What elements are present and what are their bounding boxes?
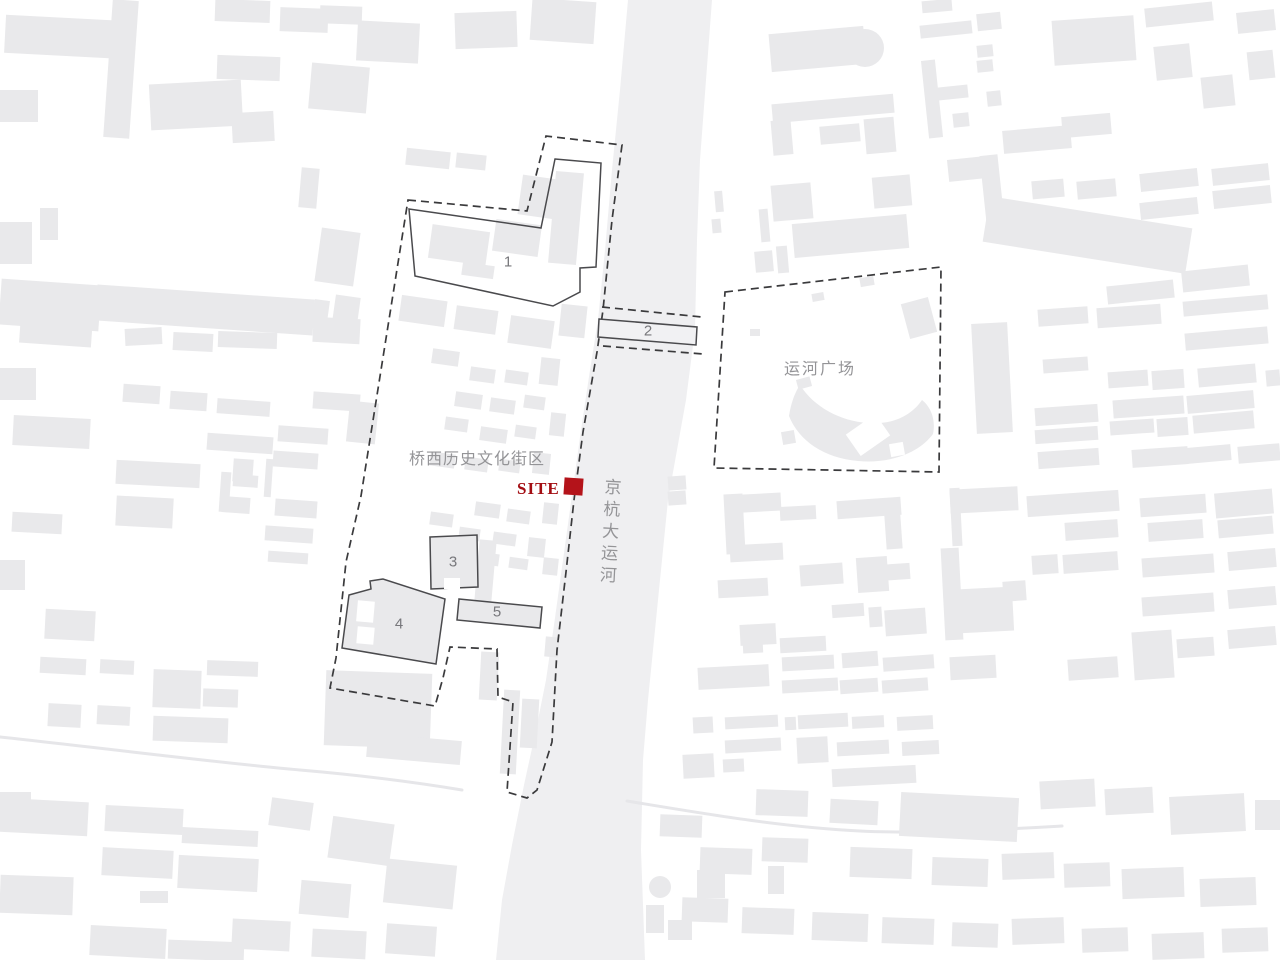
building-footprint <box>785 717 797 731</box>
building-footprint <box>859 276 874 287</box>
site-marker <box>563 477 583 495</box>
building-footprint <box>0 368 36 400</box>
building-footprint <box>233 474 259 488</box>
building-footprint <box>1186 390 1254 414</box>
building-footprint <box>1255 800 1280 830</box>
building-footprint <box>1141 593 1214 617</box>
building-footprint <box>1031 179 1064 200</box>
building-footprint <box>1002 852 1055 880</box>
building-footprint <box>405 148 451 170</box>
courtyard-patch <box>889 442 905 457</box>
building-footprint <box>308 63 370 114</box>
building-footprint <box>231 919 290 952</box>
building-footprint <box>776 246 789 274</box>
building-footprint <box>952 112 969 128</box>
building-footprint <box>217 55 281 81</box>
building-footprint <box>44 609 96 642</box>
building-footprint <box>842 651 879 668</box>
building-footprint <box>780 505 817 521</box>
building-footprint <box>725 738 782 754</box>
building-footprint <box>899 792 1019 842</box>
building-footprint <box>40 208 58 240</box>
building-footprint <box>115 496 173 529</box>
building-footprint <box>549 412 566 436</box>
building-footprint <box>1026 490 1119 517</box>
building-footprint <box>206 433 273 455</box>
building-footprint <box>956 587 1014 634</box>
building-footprint <box>668 920 692 940</box>
building-footprint <box>461 262 494 279</box>
building-footprint <box>530 0 597 44</box>
building-footprint <box>1169 793 1246 835</box>
building-footprint <box>1067 656 1118 680</box>
building-footprint <box>646 905 664 933</box>
building-footprint <box>311 929 366 960</box>
building-footprint <box>668 490 687 505</box>
building-footprint <box>231 111 275 143</box>
building-footprint <box>697 664 769 690</box>
building-footprint <box>298 167 319 208</box>
building-footprint <box>718 578 769 599</box>
building-footprint <box>356 20 420 63</box>
building-footprint <box>1227 626 1276 649</box>
building-footprint <box>1104 787 1153 815</box>
building-footprint <box>1106 280 1175 305</box>
building-footprint <box>882 677 929 693</box>
building-footprint <box>1212 185 1272 209</box>
building-footprint <box>882 917 935 945</box>
building-footprint <box>1227 586 1276 609</box>
building-footprint <box>723 758 745 772</box>
courtyard-patch <box>356 600 375 622</box>
building-footprint <box>771 119 794 156</box>
building-footprint <box>320 5 363 24</box>
building-footprint <box>1112 396 1184 419</box>
building-footprint <box>149 80 243 131</box>
building-footprint <box>811 292 824 302</box>
building-footprint <box>782 655 835 672</box>
building-footprint <box>474 501 501 518</box>
building-footprint <box>122 384 160 405</box>
building-footprint <box>40 657 87 675</box>
building-footprint <box>1222 927 1269 953</box>
building-footprint <box>840 678 879 695</box>
building-footprint <box>207 660 258 677</box>
building-footprint <box>265 525 314 543</box>
building-footprint <box>140 891 168 903</box>
building-footprint <box>742 907 795 935</box>
building-footprint <box>1183 294 1269 316</box>
building-footprint <box>739 623 776 646</box>
building-footprint <box>1151 369 1184 390</box>
building-footprint <box>1131 446 1188 468</box>
building-footprint <box>217 398 271 417</box>
building-footprint <box>12 415 90 449</box>
district-label: 桥西历史文化街区 <box>409 451 545 467</box>
building-footprint <box>1012 917 1065 945</box>
building-footprint <box>852 715 885 729</box>
building-footprint <box>759 209 771 243</box>
building-1-number: 1 <box>504 255 512 270</box>
building-footprint <box>504 369 529 385</box>
building-footprint <box>558 304 587 339</box>
building-footprint <box>693 716 714 733</box>
building-footprint <box>1107 370 1148 389</box>
building-footprint <box>872 174 913 208</box>
building-footprint <box>1184 326 1268 350</box>
building-footprint <box>314 228 360 287</box>
building-footprint <box>819 123 860 144</box>
building-footprint <box>812 912 869 942</box>
building-footprint <box>682 897 729 923</box>
building-footprint <box>832 765 917 787</box>
building-footprint <box>520 699 540 749</box>
building-footprint-round <box>846 29 884 67</box>
building-footprint <box>1144 1 1214 27</box>
building-footprint <box>47 703 81 728</box>
building-footprint <box>1211 163 1269 186</box>
building-footprint <box>1131 630 1174 681</box>
building-footprint <box>798 713 849 730</box>
building-footprint <box>0 875 74 916</box>
building-footprint <box>527 537 546 558</box>
building-footprint <box>274 499 317 519</box>
building-footprint <box>949 486 1018 514</box>
building-footprint <box>0 798 89 837</box>
building-footprint <box>1061 113 1112 138</box>
building-footprint <box>173 332 214 352</box>
building-footprint <box>1227 548 1276 571</box>
building-footprint <box>272 450 318 469</box>
building-footprint <box>1176 637 1214 659</box>
building-footprint <box>299 880 352 918</box>
building-footprint <box>952 922 999 948</box>
building-footprint <box>792 214 910 258</box>
building-footprint <box>153 716 229 744</box>
building-footprint <box>901 297 937 339</box>
building-footprint <box>668 475 687 490</box>
building-footprint <box>1121 867 1184 899</box>
building-footprint <box>1217 516 1273 539</box>
building-footprint <box>1034 404 1098 426</box>
building-footprint <box>884 608 927 637</box>
courtyard-patch <box>444 578 460 589</box>
building-footprint <box>697 870 725 898</box>
canal-label: 京杭大运河 <box>596 478 619 589</box>
building-footprint <box>849 847 912 879</box>
building-footprint <box>500 690 520 775</box>
building-footprint <box>1237 443 1280 464</box>
building-footprint <box>1043 356 1089 373</box>
building-footprint <box>949 655 996 680</box>
building-footprint <box>762 837 809 863</box>
building-footprint <box>366 733 462 765</box>
building-footprint <box>182 827 259 847</box>
building-footprint <box>104 805 183 835</box>
building-footprint <box>385 923 437 956</box>
building-footprint <box>398 295 447 327</box>
building-footprint <box>0 90 38 122</box>
building-footprint <box>1236 9 1276 34</box>
building-footprint-round <box>649 876 671 898</box>
building-footprint <box>868 607 882 628</box>
building-footprint <box>1214 489 1274 519</box>
building-footprint <box>97 705 131 726</box>
building-footprint <box>1002 125 1072 154</box>
building-footprint <box>489 397 516 414</box>
building-footprint <box>754 250 774 272</box>
building-footprint <box>1139 494 1206 518</box>
building-footprint <box>479 652 499 701</box>
building-footprint <box>1265 369 1280 386</box>
building-footprint <box>1139 168 1199 192</box>
building-footprint <box>327 816 394 866</box>
building-footprint <box>1139 197 1198 220</box>
building-footprint <box>971 322 1013 434</box>
building-footprint <box>756 789 809 817</box>
building-footprint <box>0 222 32 264</box>
building-footprint <box>1031 554 1058 575</box>
building-footprint <box>799 563 843 587</box>
building-footprint <box>1200 877 1257 907</box>
building-footprint <box>829 799 878 825</box>
building-footprint <box>428 224 490 266</box>
building-footprint <box>922 0 953 13</box>
building-footprint <box>169 391 207 412</box>
building-footprint <box>976 12 1002 31</box>
building-4-number: 4 <box>395 617 403 632</box>
building-footprint <box>1247 50 1276 81</box>
building-footprint <box>1181 265 1250 293</box>
building-footprint <box>837 740 890 757</box>
building-footprint <box>479 426 508 444</box>
building-footprint <box>89 925 166 959</box>
site-plan-map: 桥西历史文化街区 SITE 京杭大运河 运河广场 1 2 3 4 5 <box>0 0 1280 960</box>
building-footprint <box>506 508 531 524</box>
building-footprint <box>1082 927 1129 953</box>
building-footprint <box>278 425 329 444</box>
building-footprint <box>937 84 968 100</box>
building-footprint <box>725 715 779 730</box>
building-footprint <box>152 669 201 709</box>
building-footprint <box>12 512 63 535</box>
building-footprint <box>1153 43 1192 81</box>
building-footprint <box>932 857 989 887</box>
building-footprint <box>986 90 1001 106</box>
building-footprint <box>268 797 313 831</box>
building-footprint <box>1197 364 1256 388</box>
building-footprint <box>454 391 483 410</box>
building-footprint <box>0 560 25 590</box>
courtyard-patch <box>356 626 374 644</box>
building-3-number: 3 <box>449 555 457 570</box>
building-footprint <box>711 219 721 234</box>
building-footprint <box>101 847 173 879</box>
building-footprint <box>115 460 200 488</box>
building-footprint <box>771 182 814 221</box>
building-footprint <box>508 557 528 571</box>
building-footprint <box>1147 519 1203 542</box>
building-footprint <box>883 501 902 550</box>
building-footprint <box>730 543 784 563</box>
building-footprint <box>469 366 496 383</box>
building-footprint <box>714 191 724 213</box>
building-footprint <box>1156 417 1188 437</box>
building-4-outline <box>342 579 445 664</box>
building-footprint <box>455 152 486 170</box>
building-footprint <box>976 59 993 73</box>
building-footprint <box>1064 862 1111 888</box>
building-footprint <box>876 563 910 581</box>
building-footprint <box>429 511 454 527</box>
building-footprint <box>542 557 559 575</box>
building-footprint <box>780 636 827 653</box>
building-footprint <box>682 753 714 779</box>
building-2-number: 2 <box>644 324 652 339</box>
building-footprint <box>1062 551 1118 574</box>
building-footprint <box>346 401 379 445</box>
building-footprint <box>1039 779 1095 810</box>
building-footprint <box>768 866 784 894</box>
building-footprint <box>781 430 796 445</box>
building-footprint <box>221 496 250 514</box>
building-footprint <box>782 678 839 694</box>
building-footprint <box>1152 932 1205 960</box>
building-footprint <box>902 740 940 756</box>
site-label: SITE <box>517 480 560 497</box>
map-canvas <box>0 0 1280 960</box>
building-footprint <box>514 425 536 440</box>
building-footprint <box>1192 410 1254 433</box>
building-footprint <box>507 315 554 349</box>
building-footprint <box>1064 519 1118 541</box>
building-footprint <box>1186 444 1231 464</box>
building-footprint <box>454 11 517 49</box>
building-footprint <box>215 0 271 23</box>
building-footprint <box>203 688 239 707</box>
building-footprint <box>1200 74 1235 108</box>
building-footprint <box>312 317 360 344</box>
building-footprint <box>1035 426 1099 444</box>
building-footprint <box>660 814 703 837</box>
building-footprint <box>883 654 935 672</box>
building-footprint <box>976 44 993 58</box>
building-footprint <box>1037 306 1088 326</box>
building-footprint <box>444 416 469 432</box>
building-footprint <box>750 329 760 336</box>
building-footprint <box>1110 418 1155 435</box>
building-footprint <box>19 313 93 348</box>
building-footprint <box>1096 304 1161 328</box>
building-footprint <box>264 459 274 497</box>
building-footprint <box>864 117 897 154</box>
building-footprint <box>542 502 559 524</box>
building-footprint <box>177 855 259 892</box>
building-footprint <box>743 643 763 653</box>
building-footprint <box>454 305 499 335</box>
building-footprint <box>897 715 934 731</box>
building-footprint <box>919 20 972 38</box>
building-footprint <box>218 331 278 349</box>
building-footprint <box>383 858 457 909</box>
building-footprint <box>1076 178 1116 199</box>
plaza-label: 运河广场 <box>784 361 856 377</box>
building-footprint <box>431 348 460 367</box>
building-footprint <box>832 603 865 618</box>
building-footprint <box>100 659 135 675</box>
building-footprint <box>1141 554 1214 578</box>
building-footprint <box>95 284 315 335</box>
building-footprint <box>796 736 828 764</box>
building-footprint <box>1052 15 1137 66</box>
building-footprint <box>539 357 561 386</box>
building-footprint <box>1037 448 1099 469</box>
building-footprint <box>268 551 309 565</box>
building-footprint <box>125 327 163 346</box>
building-5-number: 5 <box>493 605 501 620</box>
building-footprint <box>523 395 546 411</box>
